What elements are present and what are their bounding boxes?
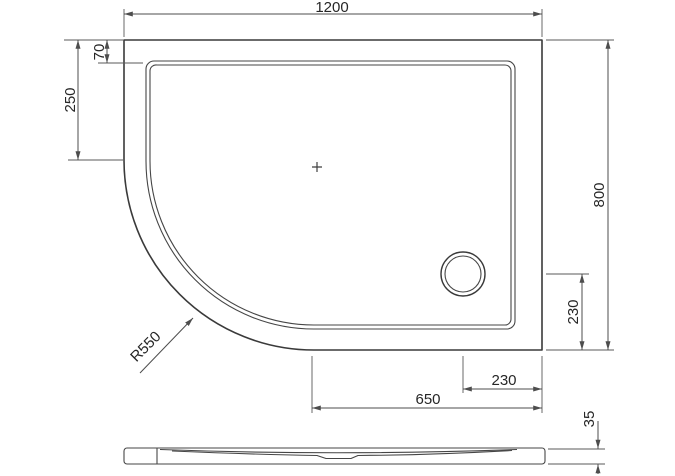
- dim-corner-radius-label: R550: [127, 328, 164, 365]
- plan-view: 1200 70 250 800: [62, 0, 614, 413]
- dim-rim-width-label: 70: [91, 44, 108, 61]
- dim-rim-width: 70: [64, 40, 143, 63]
- dim-left-straight-edge-label: 250: [62, 87, 79, 112]
- tray-outer-outline: [124, 40, 542, 350]
- dim-drain-to-right: 230: [463, 356, 542, 413]
- tray-rim-inner-edge-outer: [146, 61, 515, 329]
- side-view: 35: [124, 411, 605, 474]
- dim-corner-radius: R550: [127, 318, 193, 373]
- dim-drain-to-right-label: 230: [491, 372, 516, 389]
- dim-drain-to-bottom: 230: [546, 274, 589, 350]
- shower-tray-drawing: 1200 70 250 800: [0, 0, 675, 476]
- center-mark-icon: [312, 162, 322, 172]
- drain-outer-circle: [441, 252, 485, 296]
- dim-overall-width: 1200: [124, 0, 542, 37]
- technical-drawing-canvas: 1200 70 250 800: [0, 0, 675, 476]
- drain-inner-circle: [445, 256, 481, 292]
- dim-bottom-straight-edge-label: 650: [415, 391, 440, 408]
- dim-overall-depth-label: 800: [591, 182, 608, 207]
- dim-tray-height-label: 35: [581, 411, 598, 428]
- dim-drain-to-bottom-label: 230: [565, 299, 582, 324]
- dim-tray-height: 35: [548, 411, 605, 474]
- dim-overall-width-label: 1200: [315, 0, 348, 16]
- tray-rim-inner-edge-inner: [150, 65, 511, 325]
